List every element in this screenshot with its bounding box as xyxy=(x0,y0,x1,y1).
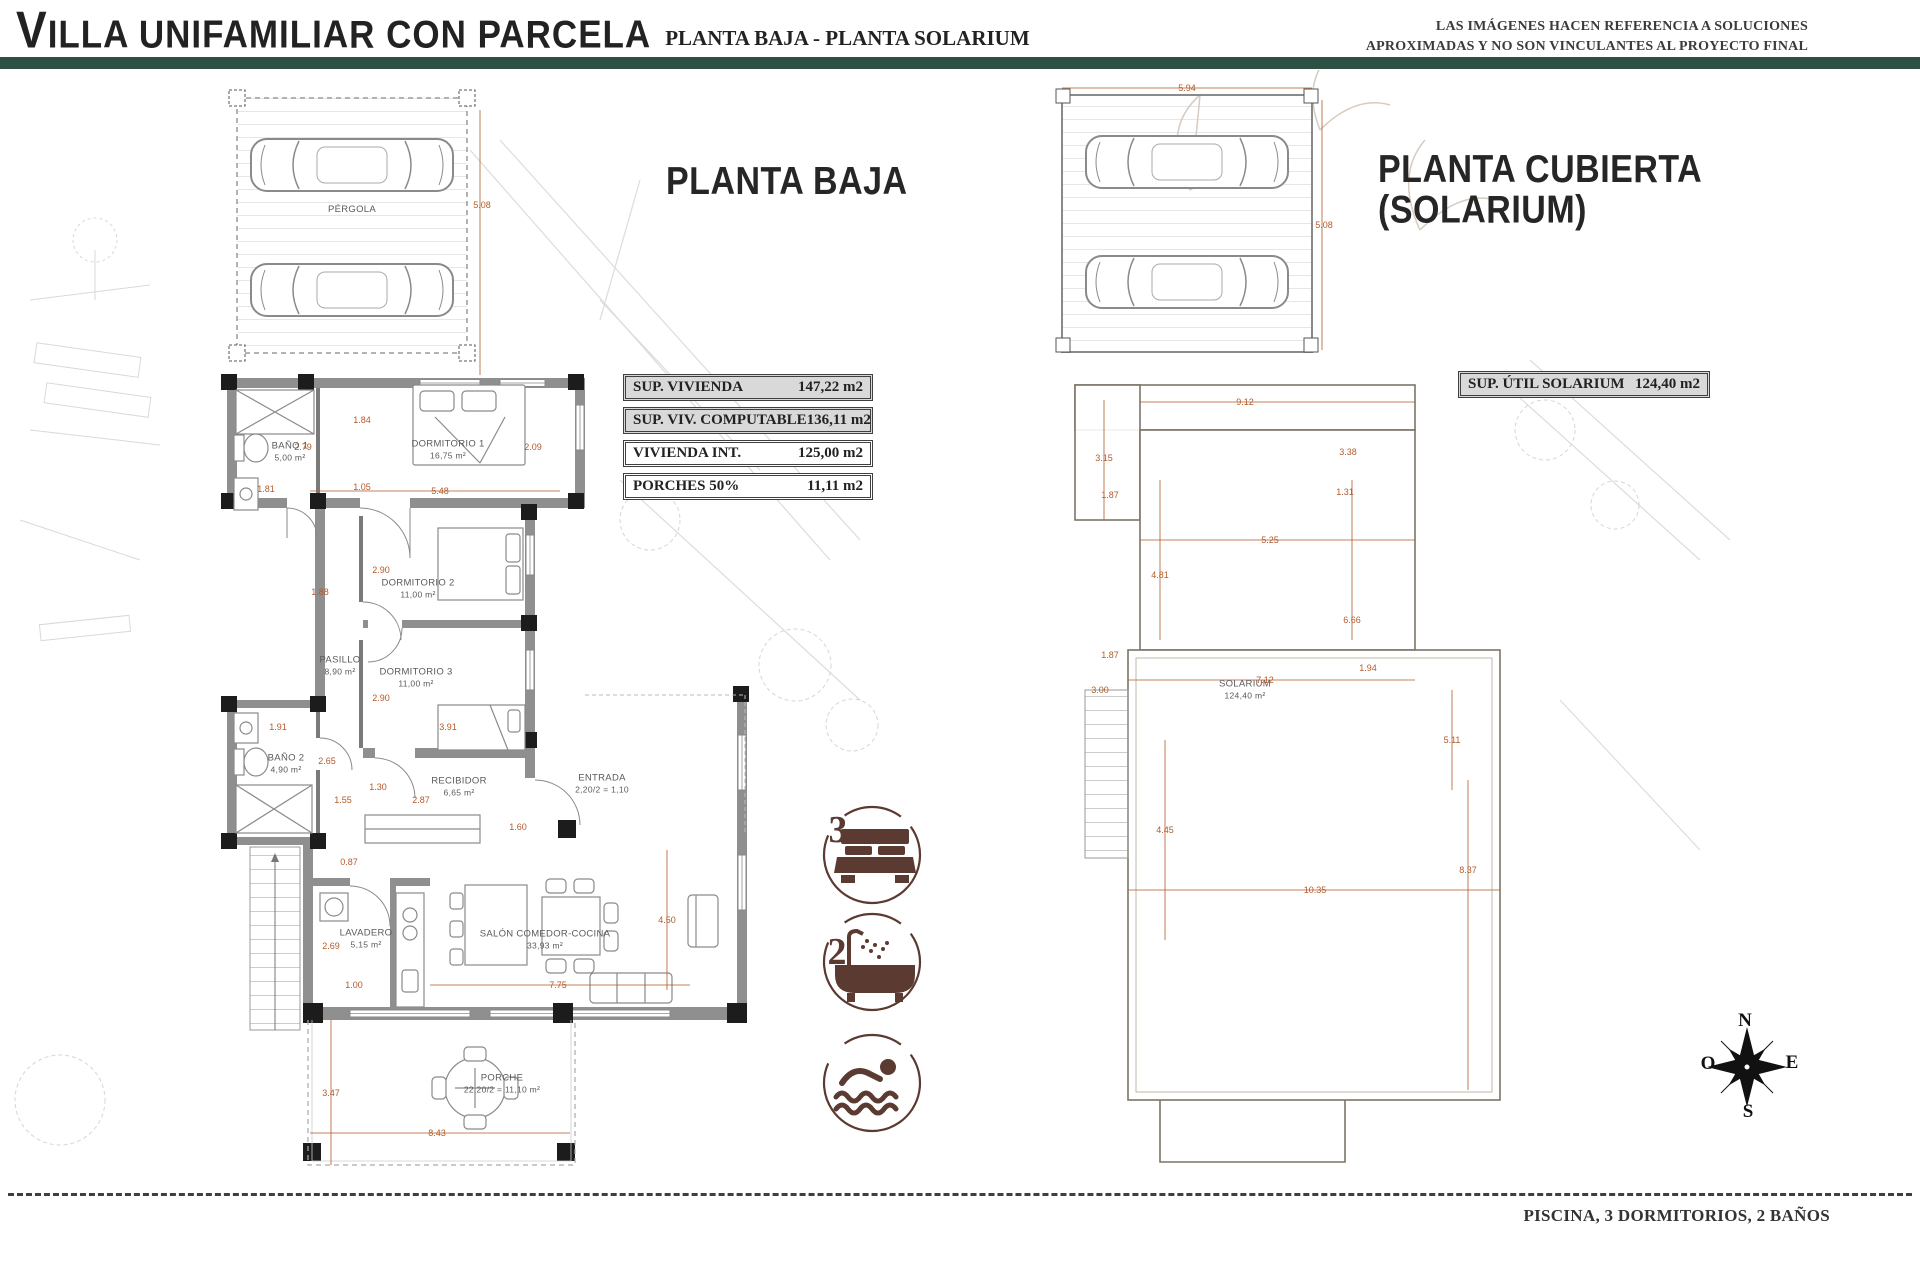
bedroom-count: 3 xyxy=(829,808,848,852)
areas-table-label: SUP. VIV. COMPUTABLE xyxy=(633,412,807,429)
dimension-label: 9.12 xyxy=(1236,397,1254,407)
dimension-label: 1.88 xyxy=(311,587,329,597)
dimension-label: 7.75 xyxy=(549,980,567,990)
dimension-label: 3.91 xyxy=(439,722,457,732)
areas-table-label: PORCHES 50% xyxy=(633,478,739,495)
room-label: ENTRADA 2,20/2 = 1,10 xyxy=(575,772,629,795)
dimension-label: 3.15 xyxy=(1095,453,1113,463)
bath-icon xyxy=(835,931,915,1002)
room-label: RECIBIDOR 6,65 m² xyxy=(431,775,486,798)
dimension-label: 2.65 xyxy=(318,756,336,766)
page-title-initial: V xyxy=(16,1,48,59)
areas-table-value: 125,00 m2 xyxy=(798,445,863,462)
room-area: 124,40 m² xyxy=(1219,691,1271,702)
dimension-label: 4.45 xyxy=(1156,825,1174,835)
room-label: PASILLO 8,90 m² xyxy=(320,654,361,677)
room-label: BAÑO 2 4,90 m² xyxy=(268,752,305,775)
areas-table-row: SUP. VIV. COMPUTABLE 136,11 m2 xyxy=(623,407,873,434)
dimension-label: 2.79 xyxy=(294,442,312,452)
room-label: PORCHE 22,20/2 = 11,10 m² xyxy=(464,1072,540,1095)
amenity-icons xyxy=(805,795,940,1145)
door-arcs xyxy=(287,508,580,926)
planta-cubierta-drawing xyxy=(1040,80,1560,1190)
dimension-label: 2.69 xyxy=(322,941,340,951)
room-label: PÉRGOLA xyxy=(328,204,376,216)
room-area: 5,00 m² xyxy=(272,453,309,464)
room-area: 11,00 m² xyxy=(381,590,454,601)
dimension-label: 1.94 xyxy=(1359,663,1377,673)
areas-table-label: SUP. VIVIENDA xyxy=(633,379,743,396)
areas-table-row: VIVIENDA INT. 125,00 m2 xyxy=(623,440,873,467)
dimension-label: 5.25 xyxy=(1261,535,1279,545)
dimension-label: 0.87 xyxy=(340,857,358,867)
room-name: PORCHE xyxy=(464,1072,540,1084)
room-area: 22,20/2 = 11,10 m² xyxy=(464,1085,540,1096)
solarium-table-row: SUP. ÚTIL SOLARIUM 124,40 m2 xyxy=(1458,371,1710,398)
compass-south-label: S xyxy=(1743,1101,1754,1123)
dimension-label: 4.81 xyxy=(1151,570,1169,580)
room-label: DORMITORIO 3 11,00 m² xyxy=(379,666,452,689)
stairs xyxy=(250,847,300,1030)
compass-west-label: O xyxy=(1701,1053,1716,1075)
disclaimer: LAS IMÁGENES HACEN REFERENCIA A SOLUCION… xyxy=(1188,17,1808,58)
dimension-label: 8.43 xyxy=(428,1128,446,1138)
dimension-label: 10.35 xyxy=(1304,885,1327,895)
dimension-label: 1.87 xyxy=(1101,650,1119,660)
dimension-label: 3.38 xyxy=(1339,447,1357,457)
dimension-label: 3.00 xyxy=(1091,685,1109,695)
room-label: DORMITORIO 2 11,00 m² xyxy=(381,577,454,600)
dimension-label: 2.09 xyxy=(524,442,542,452)
planta-baja-drawing xyxy=(170,85,810,1195)
room-area: 33,93 m² xyxy=(480,941,611,952)
dimension-label: 5.48 xyxy=(431,486,449,496)
planta-cubierta-title: PLANTA CUBIERTA (SOLARIUM) xyxy=(1378,150,1702,231)
room-area: 8,90 m² xyxy=(320,667,361,678)
dimension-label: 1.05 xyxy=(353,482,371,492)
planta-cubierta-title-line2: (SOLARIUM) xyxy=(1378,191,1702,232)
solarium-outline xyxy=(1075,385,1500,1162)
dimension-label: 6.66 xyxy=(1343,615,1361,625)
compass-east-label: E xyxy=(1786,1052,1799,1074)
cut-line xyxy=(8,1193,1912,1196)
room-name: BAÑO 2 xyxy=(268,752,305,764)
solarium-stairs xyxy=(1085,690,1128,858)
disclaimer-line2: APROXIMADAS Y NO SON VINCULANTES AL PROY… xyxy=(1188,37,1808,57)
areas-table-row: PORCHES 50% 11,11 m2 xyxy=(623,473,873,500)
dimension-label: 1.00 xyxy=(345,980,363,990)
solarium-table-label: SUP. ÚTIL SOLARIUM xyxy=(1468,376,1625,393)
room-name: PASILLO xyxy=(320,654,361,666)
areas-table-value: 11,11 m2 xyxy=(807,478,863,495)
page-title: VILLA UNIFAMILIAR CON PARCELAPLANTA BAJA… xyxy=(16,6,1030,60)
disclaimer-line1: LAS IMÁGENES HACEN REFERENCIA A SOLUCION… xyxy=(1188,17,1808,37)
pergola-carport xyxy=(229,90,480,375)
solarium-pergola xyxy=(1056,88,1322,352)
dimension-label: 1.30 xyxy=(369,782,387,792)
room-name: RECIBIDOR xyxy=(431,775,486,787)
room-name: DORMITORIO 3 xyxy=(379,666,452,678)
compass-north-label: N xyxy=(1738,1010,1752,1032)
plan-sheet: VILLA UNIFAMILIAR CON PARCELAPLANTA BAJA… xyxy=(0,0,1920,1280)
areas-table-label: VIVIENDA INT. xyxy=(633,445,741,462)
dimension-label: 7.12 xyxy=(1256,675,1274,685)
room-name: LAVADERO xyxy=(340,927,393,939)
room-area: 2,20/2 = 1,10 xyxy=(575,785,629,796)
room-name: ENTRADA xyxy=(575,772,629,784)
planta-baja-title: PLANTA BAJA xyxy=(666,162,908,203)
dimension-label: 8.37 xyxy=(1459,865,1477,875)
dimension-label: 1.81 xyxy=(257,484,275,494)
room-name: PÉRGOLA xyxy=(328,204,376,216)
page-title-rest: ILLA UNIFAMILIAR CON PARCELA xyxy=(48,13,652,57)
dimension-label: 2.90 xyxy=(372,565,390,575)
room-area: 5,15 m² xyxy=(340,940,393,951)
solarium-table: SUP. ÚTIL SOLARIUM 124,40 m2 xyxy=(1458,371,1710,398)
dimension-label: 1.84 xyxy=(353,415,371,425)
bathroom-count: 2 xyxy=(828,930,847,974)
room-name: DORMITORIO 1 xyxy=(411,438,484,450)
room-area: 16,75 m² xyxy=(411,451,484,462)
footer-summary: PISCINA, 3 DORMITORIOS, 2 BAÑOS xyxy=(1523,1206,1830,1226)
dimension-label: 5.94 xyxy=(1178,83,1196,93)
room-name: DORMITORIO 2 xyxy=(381,577,454,589)
room-label: LAVADERO 5,15 m² xyxy=(340,927,393,950)
dimension-label: 2.90 xyxy=(372,693,390,703)
swimmer-icon xyxy=(836,1059,896,1113)
room-label: SALÓN COMEDOR-COCINA 33,93 m² xyxy=(480,928,611,951)
areas-table: SUP. VIVIENDA 147,22 m2 SUP. VIV. COMPUT… xyxy=(623,374,873,506)
areas-table-value: 147,22 m2 xyxy=(798,379,863,396)
dimension-label: 2.87 xyxy=(412,795,430,805)
dimension-label: 5.08 xyxy=(473,200,491,210)
room-area: 11,00 m² xyxy=(379,679,452,690)
room-name: SALÓN COMEDOR-COCINA xyxy=(480,928,611,940)
dimension-label: 5.08 xyxy=(1315,220,1333,230)
dimension-label: 1.60 xyxy=(509,822,527,832)
page-subtitle: PLANTA BAJA - PLANTA SOLARIUM xyxy=(665,26,1029,51)
areas-table-value: 136,11 m2 xyxy=(807,412,871,429)
dimension-label: 1.55 xyxy=(334,795,352,805)
dimension-label: 1.91 xyxy=(269,722,287,732)
dimension-label: 1.31 xyxy=(1336,487,1354,497)
dimension-label: 1.87 xyxy=(1101,490,1119,500)
areas-table-row: SUP. VIVIENDA 147,22 m2 xyxy=(623,374,873,401)
room-label: DORMITORIO 1 16,75 m² xyxy=(411,438,484,461)
header-accent-bar xyxy=(0,57,1920,69)
solarium-table-value: 124,40 m2 xyxy=(1635,376,1700,393)
dimension-label: 4.50 xyxy=(658,915,676,925)
dimension-label: 3.47 xyxy=(322,1088,340,1098)
dimension-label: 5.11 xyxy=(1444,735,1461,745)
room-area: 6,65 m² xyxy=(431,788,486,799)
room-area: 4,90 m² xyxy=(268,765,305,776)
planta-cubierta-title-line1: PLANTA CUBIERTA xyxy=(1378,150,1702,191)
